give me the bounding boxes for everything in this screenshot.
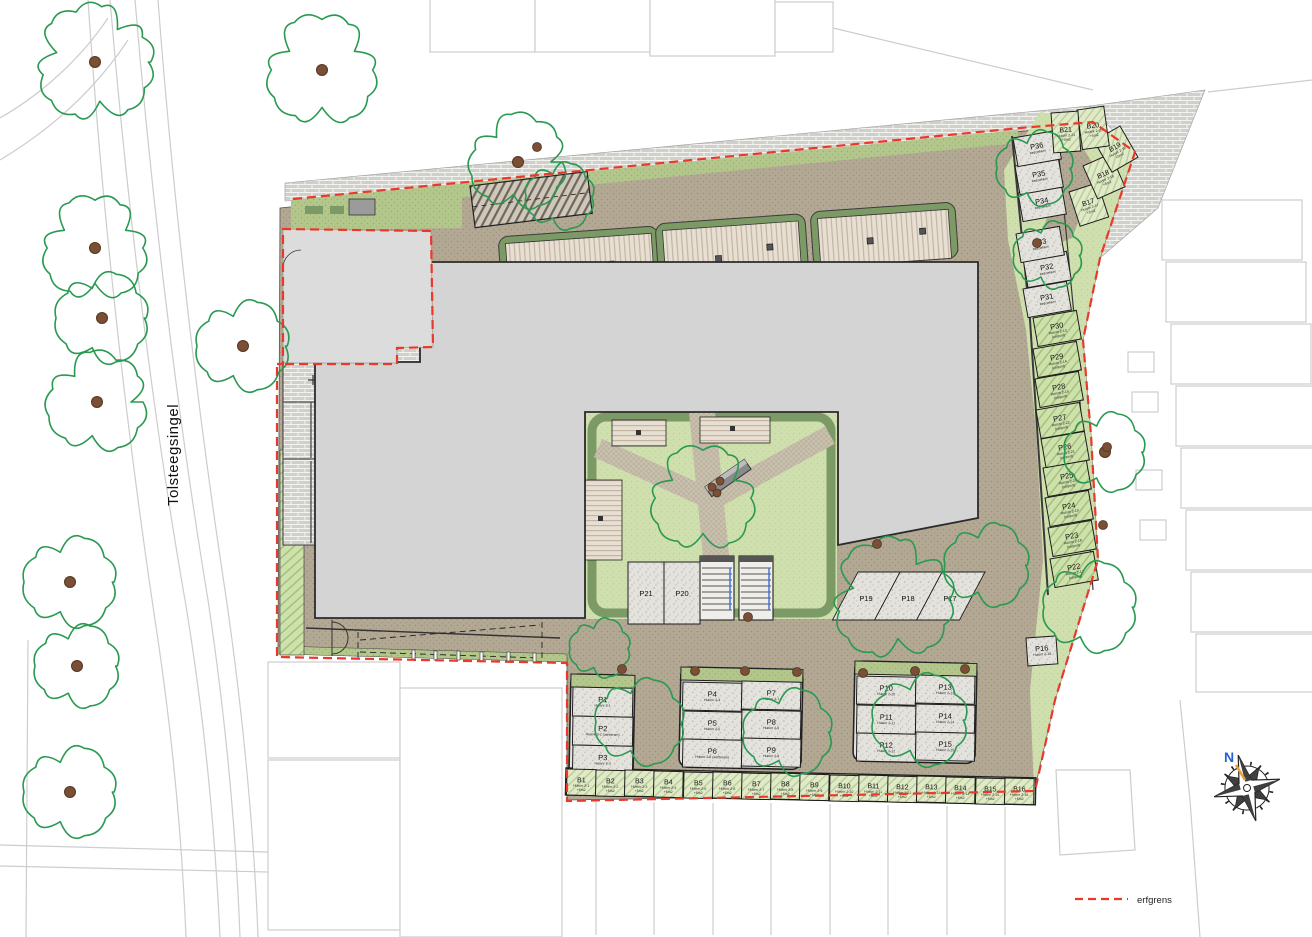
storage-unit-b1: B1Huisnr 2-1+5m2 bbox=[566, 769, 596, 796]
spot-label: P18 bbox=[901, 594, 914, 603]
storage-unit-b5: B5Huisnr 2-5+5m2 bbox=[683, 772, 713, 799]
spot-sublabel: +5m2 bbox=[577, 788, 586, 792]
shrub-dot bbox=[873, 540, 882, 549]
spot-sublabel: +5m2 bbox=[1015, 797, 1024, 801]
parking-spot-p16: P16Huisnr 2-16 bbox=[1026, 636, 1058, 666]
shrub-dot bbox=[859, 669, 868, 678]
spot-sublabel: +5m2 bbox=[1062, 137, 1071, 142]
spot-sublabel: +5m2 bbox=[694, 791, 703, 795]
shrub-dot bbox=[793, 668, 802, 677]
shrub-dot bbox=[1033, 239, 1042, 248]
storage-unit-b12: B12Huisnr 2-12+5m2 bbox=[887, 776, 917, 803]
shrub-dot bbox=[691, 667, 700, 676]
spot-sublabel: +5m2 bbox=[752, 792, 761, 796]
parking-spot-p4: P4Huisnr 2-4 bbox=[682, 682, 742, 711]
spot-sublabel: Huisnr 2-15 bbox=[936, 748, 954, 752]
compass-north-label: N bbox=[1224, 749, 1234, 765]
parking-spot-p7: P7Huisnr 2-7 bbox=[741, 681, 801, 710]
shrub-dot bbox=[961, 665, 970, 674]
shrub-dot bbox=[1099, 521, 1108, 530]
spot-sublabel: +5m2 bbox=[986, 797, 995, 801]
shrub-dot bbox=[716, 477, 724, 485]
shrub-dot bbox=[1103, 443, 1112, 452]
shrub-dot bbox=[741, 667, 750, 676]
tree-icon bbox=[45, 350, 146, 451]
parking-spot-p8: P8Huisnr 2-8 bbox=[741, 710, 801, 739]
storage-unit-b14: B14Huisnr 2-14+5m2 bbox=[945, 777, 975, 804]
shrub-dot bbox=[618, 665, 627, 674]
tree-icon bbox=[267, 15, 377, 123]
spot-sublabel: Huisnr 2-2 (achterom) bbox=[586, 732, 620, 737]
parking-spot-p6: P6Huisnr 2-6 (achterom) bbox=[682, 739, 742, 768]
storage-unit-b7: B7Huisnr 2-7+5m2 bbox=[741, 773, 771, 800]
shrub-dot bbox=[713, 489, 721, 497]
storage-unit-b10: B10Huisnr 2-10+5m2 bbox=[829, 775, 859, 802]
spot-label: P20 bbox=[675, 589, 688, 598]
spot-sublabel: +5m2 bbox=[635, 789, 644, 793]
shrub-dot bbox=[533, 143, 542, 152]
parking-spot-p13: P13Huisnr 2-13 bbox=[915, 675, 975, 704]
spot-sublabel: Huisnr 2-4 bbox=[704, 698, 720, 702]
spot-sublabel: +5m2 bbox=[664, 790, 673, 794]
legend-erfgrens-label: erfgrens bbox=[1137, 895, 1172, 906]
parking-spot-p20: P20 bbox=[664, 562, 700, 624]
tree-icon bbox=[34, 624, 119, 709]
spot-sublabel: Huisnr 2-9 bbox=[763, 754, 779, 758]
storage-unit-b20: B20Huisnr 2-20+5m2 bbox=[1077, 106, 1109, 149]
parking-spot-p2: P2Huisnr 2-2 (achterom) bbox=[572, 716, 633, 746]
spot-sublabel: +5m2 bbox=[956, 796, 965, 800]
spot-sublabel: Huisnr 2-6 (achterom) bbox=[695, 755, 729, 760]
storage-unit-b6: B6Huisnr 2-6+5m2 bbox=[712, 772, 742, 799]
tree-icon bbox=[196, 300, 289, 393]
parking-spot-p11: P11Huisnr 2-11 bbox=[856, 705, 916, 734]
storage-unit-b3: B3Huisnr 2-3+5m2 bbox=[624, 770, 654, 797]
parking-spot-p9: P9Huisnr 2-9 bbox=[741, 738, 801, 767]
compass-rose: N bbox=[1205, 746, 1288, 829]
storage-unit-b13: B13Huisnr 2-13+5m2 bbox=[916, 776, 946, 803]
spot-sublabel: Huisnr 2-11 bbox=[877, 721, 895, 725]
parking-spot-p5: P5Huisnr 2-5 bbox=[682, 711, 742, 740]
spot-sublabel: Huisnr 2-5 bbox=[704, 727, 720, 731]
legend: erfgrens bbox=[1075, 895, 1172, 906]
spot-sublabel: +5m2 bbox=[723, 791, 732, 795]
shrub-dot bbox=[744, 613, 753, 622]
building-northwest bbox=[283, 229, 433, 363]
context-buildings-top bbox=[430, 0, 1093, 90]
storage-unit-b4: B4Huisnr 2-4+5m2 bbox=[653, 771, 683, 798]
spot-sublabel: +5m2 bbox=[898, 795, 907, 799]
parking-spot-p21: P21 bbox=[628, 562, 664, 624]
site-plan-canvas: P1Huisnr 2-1P2Huisnr 2-2 (achterom)P3Hui… bbox=[0, 0, 1312, 937]
tree-icon bbox=[23, 746, 116, 839]
spot-label: P21 bbox=[639, 589, 652, 598]
spot-sublabel: Huisnr 2-13 bbox=[936, 691, 954, 695]
parking-spot-p12: P12Huisnr 2-12 bbox=[856, 733, 916, 762]
street-name-label: Tolsteegsingel bbox=[165, 404, 182, 506]
spot-label: P19 bbox=[859, 594, 872, 603]
tree-icon bbox=[23, 536, 116, 629]
spot-sublabel: +5m2 bbox=[927, 795, 936, 799]
shrub-dot bbox=[911, 667, 920, 676]
spot-sublabel: Huisnr 2-8 bbox=[763, 726, 779, 730]
storage-unit-b21: B21Huisnr 2-21+5m2 bbox=[1051, 111, 1081, 153]
storage-unit-b11: B11Huisnr 2-11+5m2 bbox=[858, 775, 888, 802]
context-streets-left bbox=[0, 0, 268, 937]
spot-sublabel: Huisnr 2-14 bbox=[936, 720, 954, 724]
spot-sublabel: +5m2 bbox=[606, 789, 615, 793]
spot-sublabel: Huisnr 2-3 bbox=[594, 761, 610, 765]
storage-unit-b2: B2Huisnr 2-2+5m2 bbox=[595, 770, 625, 797]
